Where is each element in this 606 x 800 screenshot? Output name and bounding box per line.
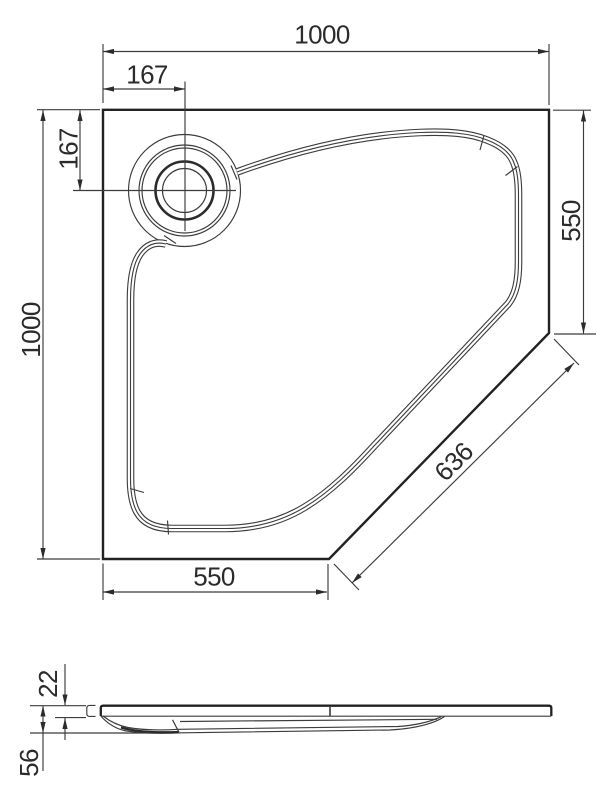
dim-drain-offset-x: 167 <box>103 60 185 90</box>
underside-outer-profile <box>101 716 445 733</box>
dim-rim-thickness: 22 <box>30 664 86 740</box>
technical-drawing: 1000 167 167 1000 550 <box>0 0 606 800</box>
dim-label-right-side: 550 <box>556 200 586 242</box>
dim-label-rim-thickness: 22 <box>33 670 63 698</box>
side-view: 22 56 <box>14 664 551 777</box>
side-underside <box>101 716 445 733</box>
extension-line <box>334 564 359 590</box>
extension-line <box>554 339 579 365</box>
underside-floor-line <box>180 719 437 721</box>
dim-label-bottom-side: 550 <box>193 562 235 592</box>
dim-label-drain-offset-x: 167 <box>126 60 168 90</box>
dim-label-diagonal: 636 <box>428 436 479 487</box>
dim-label-left-height: 1000 <box>16 302 46 358</box>
drain-pocket-crease <box>173 720 180 733</box>
plan-view: 1000 167 167 1000 550 <box>16 20 596 601</box>
side-rim-end-cap <box>87 705 96 716</box>
side-rim-plate <box>101 706 552 716</box>
dim-label-drain-offset-y: 167 <box>54 128 84 170</box>
dim-left-height: 1000 <box>16 110 100 559</box>
dim-label-top-width: 1000 <box>294 20 350 50</box>
dim-drain-offset-y: 167 <box>54 110 84 191</box>
dim-diagonal: 636 <box>334 339 579 590</box>
underside-inner-profile <box>103 716 441 730</box>
dim-top-width: 1000 <box>103 20 549 106</box>
joint-tick <box>168 521 169 535</box>
drawing-sheet: 1000 167 167 1000 550 <box>0 0 606 800</box>
dim-bottom-side: 550 <box>103 562 328 601</box>
dim-right-side: 550 <box>553 110 596 334</box>
dim-label-overall-height: 56 <box>14 749 44 777</box>
